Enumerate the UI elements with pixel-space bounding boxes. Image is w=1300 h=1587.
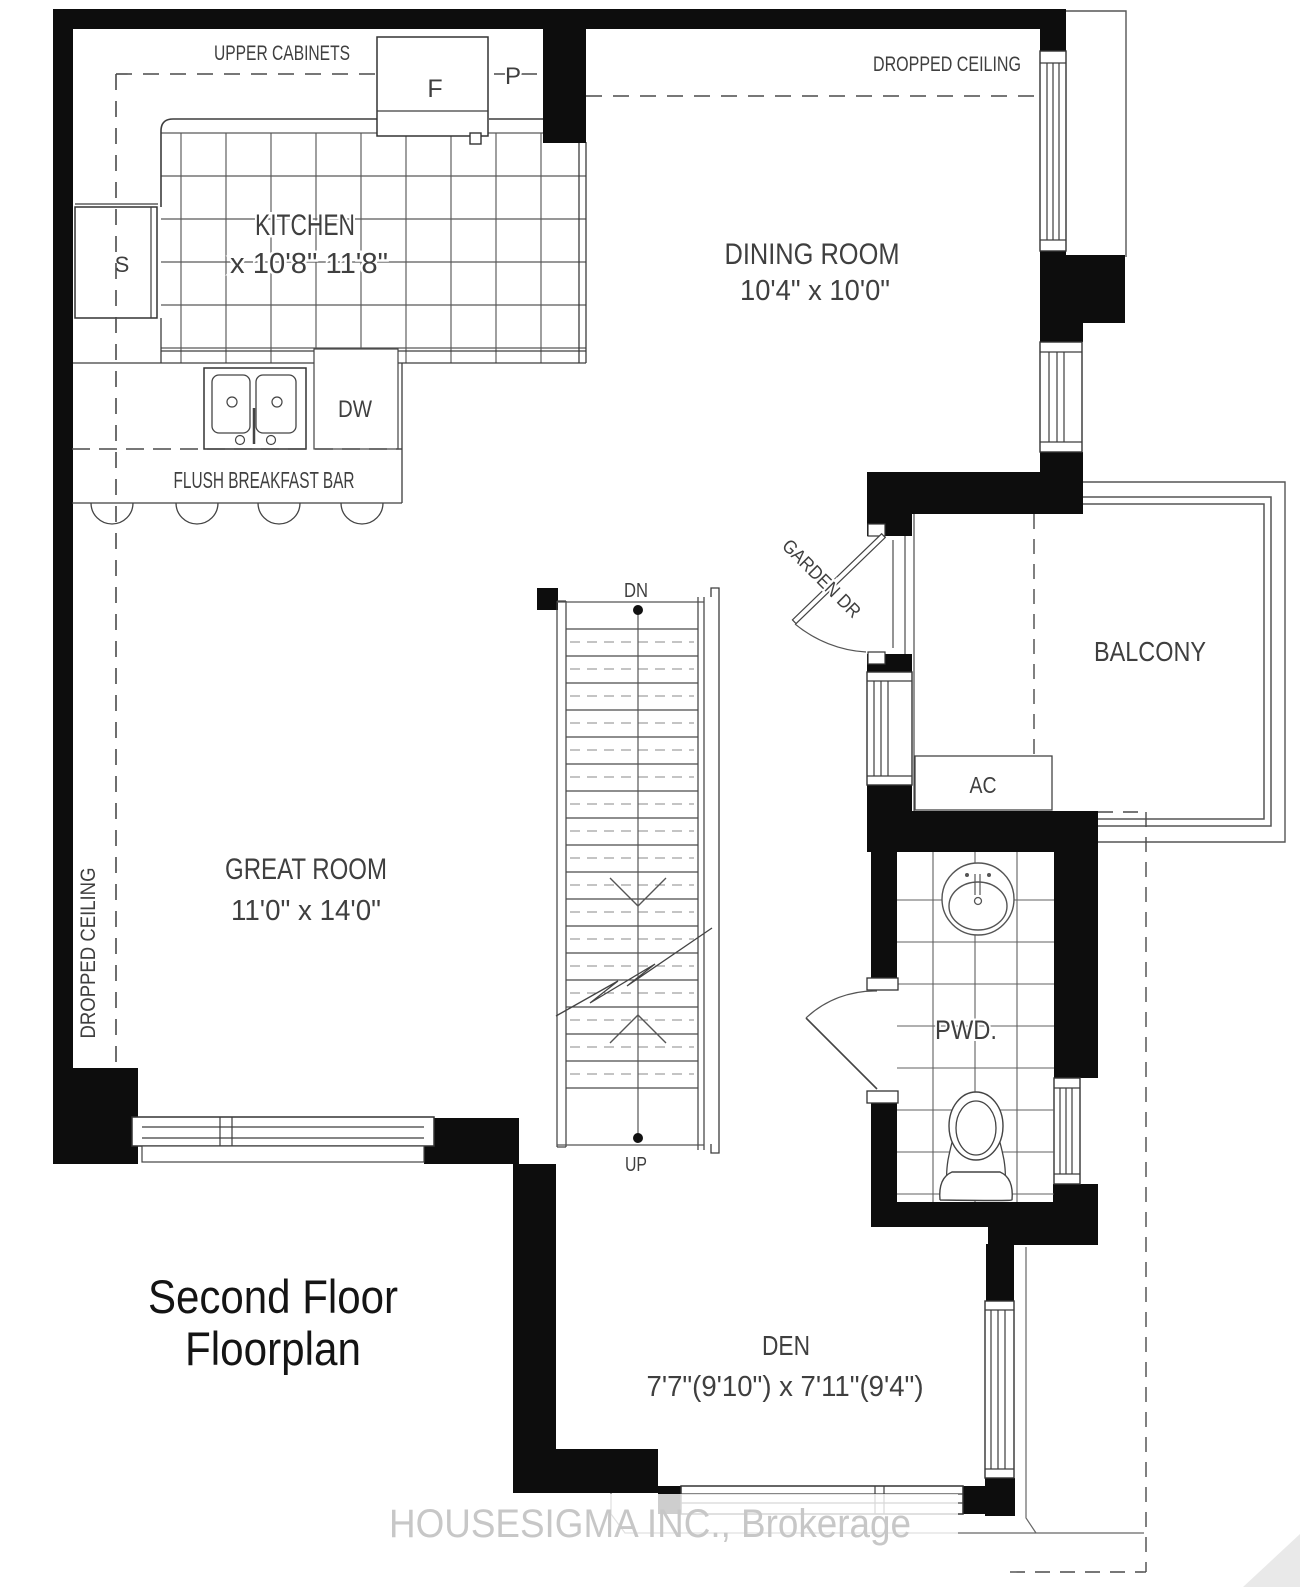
svg-text:DROPPED CEILING: DROPPED CEILING (873, 53, 1021, 76)
svg-text:PWD.: PWD. (935, 1015, 997, 1045)
svg-text:Second Floor: Second Floor (148, 1270, 398, 1323)
svg-text:Floorplan: Floorplan (185, 1322, 361, 1375)
svg-text:AC: AC (970, 772, 997, 798)
svg-text:BALCONY: BALCONY (1094, 636, 1206, 667)
svg-text:S: S (115, 252, 130, 277)
svg-text:10'4" x 10'0": 10'4" x 10'0" (740, 275, 890, 307)
svg-text:DEN: DEN (762, 1330, 810, 1361)
svg-text:UP: UP (625, 1154, 647, 1176)
svg-text:DN: DN (624, 580, 648, 602)
svg-text:11'0" x 14'0": 11'0" x 14'0" (231, 895, 381, 927)
svg-text:UPPER CABINETS: UPPER CABINETS (214, 42, 350, 65)
svg-text:F: F (427, 75, 442, 103)
svg-text:DW: DW (338, 396, 372, 423)
svg-text:P: P (505, 63, 521, 90)
svg-text:FLUSH BREAKFAST BAR: FLUSH BREAKFAST BAR (174, 467, 355, 493)
svg-text:7'7"(9'10") x 7'11"(9'4"): 7'7"(9'10") x 7'11"(9'4") (647, 1371, 924, 1403)
svg-text:HOUSESIGMA INC., Brokerage: HOUSESIGMA INC., Brokerage (389, 1502, 911, 1546)
svg-text:KITCHEN: KITCHEN (255, 209, 355, 242)
svg-text:x 10'8" 11'8": x 10'8" 11'8" (230, 248, 388, 280)
svg-text:GREAT ROOM: GREAT ROOM (225, 853, 387, 886)
svg-text:DINING ROOM: DINING ROOM (725, 238, 900, 271)
svg-text:DROPPED CEILING: DROPPED CEILING (77, 868, 100, 1039)
